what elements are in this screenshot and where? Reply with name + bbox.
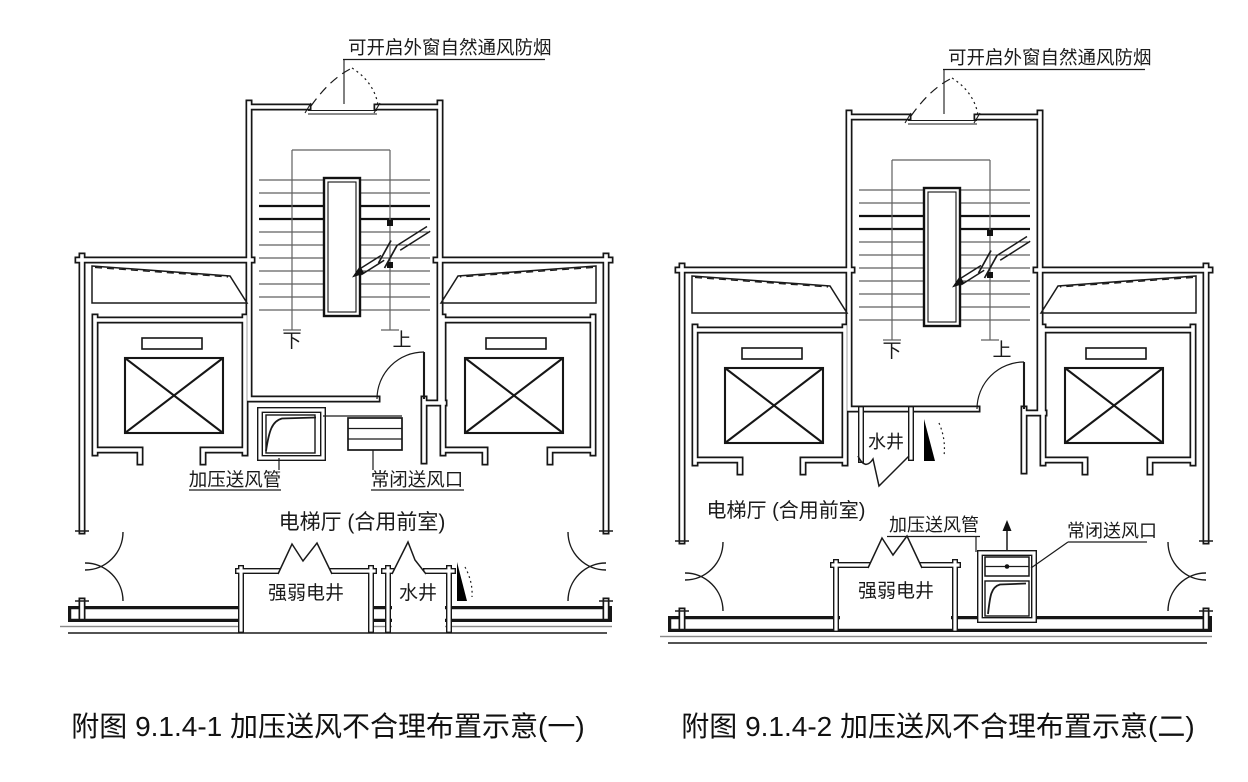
caption-2: 附图 9.1.4-2 加压送风不合理布置示意(二)	[681, 711, 1194, 742]
stair-up-label-1: 上	[392, 329, 411, 351]
hall-label-1: 电梯厅 (合用前室)	[279, 511, 446, 534]
duct-label-1: 加压送风管	[189, 469, 282, 490]
stair-up-label-2: 上	[992, 339, 1011, 361]
water-shaft-1: 水井	[384, 542, 453, 630]
plan-detail-2	[660, 70, 1213, 644]
water-shaft-label-2: 水井	[868, 432, 904, 452]
diagram-2: 水井 电梯厅 (合用前室) 加压送风管 常闭送风口 强弱电井	[660, 47, 1213, 643]
door-leaf-icon	[924, 419, 935, 461]
floor-plan-figure: 加压送风管 常闭送风口 电梯厅 (合用前室) 强弱电井 水井 可开启外窗自然通风…	[0, 0, 1248, 782]
electrical-shaft-label-2: 强弱电井	[858, 580, 934, 602]
hall-label-2: 电梯厅 (合用前室)	[707, 499, 866, 522]
stair-down-label-1: 下	[282, 331, 301, 352]
closed-outlet-label-1: 常闭送风口	[371, 469, 464, 490]
duct-assembly-2	[977, 550, 1037, 620]
closed-outlet-label-2: 常闭送风口	[1067, 521, 1157, 541]
diagram-1: 加压送风管 常闭送风口 电梯厅 (合用前室) 强弱电井 水井 可开启外窗自然通风…	[60, 37, 613, 633]
captions: 附图 9.1.4-1 加压送风不合理布置示意(一) 附图 9.1.4-2 加压送…	[71, 711, 1194, 742]
plan-detail-1	[60, 60, 613, 634]
electrical-shaft-label-1: 强弱电井	[268, 582, 344, 604]
water-shaft-2: 水井	[858, 409, 911, 486]
window-label-1: 可开启外窗自然通风防烟	[348, 37, 552, 58]
duct-label-2: 加压送风管	[889, 515, 979, 535]
stair-down-label-2: 下	[882, 341, 901, 362]
caption-1: 附图 9.1.4-1 加压送风不合理布置示意(一)	[71, 711, 584, 742]
water-shaft-label-1: 水井	[399, 582, 437, 604]
window-label-2: 可开启外窗自然通风防烟	[948, 47, 1152, 68]
electrical-shaft-2: 强弱电井	[833, 536, 958, 629]
airflow-arrow-icon	[1003, 520, 1012, 531]
plans-canvas: 加压送风管 常闭送风口 电梯厅 (合用前室) 强弱电井 水井 可开启外窗自然通风…	[0, 0, 1248, 782]
electrical-shaft-1: 强弱电井	[238, 543, 374, 630]
grille-assembly-1	[348, 418, 402, 450]
